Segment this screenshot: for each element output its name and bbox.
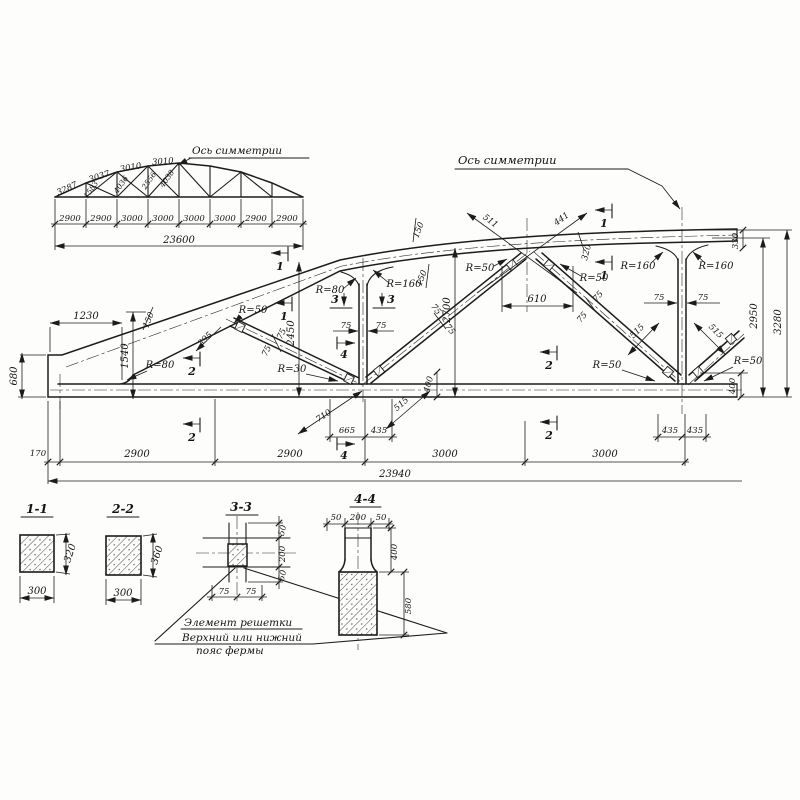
dim-515-d2: 515 <box>392 395 411 413</box>
label-r80-left: R=80 <box>127 360 175 380</box>
section-mark-4-bottom: 4 <box>337 438 355 462</box>
section-1-1-height: 320 <box>62 542 79 564</box>
section-mark-1-lowleft-num: 1 <box>280 310 288 323</box>
dim-3000-a: 3000 <box>432 449 458 460</box>
main-symmetry-axis-label: Ось симметрии <box>458 153 557 167</box>
overview-dim-panel2: 2900 <box>89 214 112 224</box>
dim-150-chord-a: 150 <box>411 220 427 239</box>
dim-3000-b: 3000 <box>592 449 618 460</box>
overview-dim-panel3: 3000 <box>121 214 143 224</box>
dim-r80-post1: R=80 <box>315 285 345 296</box>
section-mark-2-upright: 2 <box>540 346 557 372</box>
section-4-4-title: 4-4 <box>354 492 376 506</box>
section-mark-4-top-num: 4 <box>340 348 348 361</box>
dim-75-post2a: 75 <box>654 293 665 303</box>
dim-400-right: 400 <box>728 377 738 395</box>
dim-435-r2: 435 <box>686 426 703 436</box>
dim-2900-b: 2900 <box>276 449 303 460</box>
dim-395: 395 <box>196 330 215 348</box>
section-2-2: 2-2 300 360 <box>106 502 166 605</box>
dim-710: 710 <box>314 407 334 425</box>
section-mark-3-left-num: 3 <box>331 293 339 306</box>
dim-170: 170 <box>30 449 47 459</box>
overview-symmetry-axis-label: Ось симметрии <box>192 145 282 157</box>
dim-680: 680 <box>9 366 20 386</box>
dim-665: 665 <box>339 426 355 436</box>
overview-dim-panel6: 3000 <box>214 214 236 224</box>
section-3-3-d75a: 75 <box>219 587 230 597</box>
section-mark-3-right: 3 <box>373 293 395 308</box>
dim-1230-group: 1230 <box>50 311 122 380</box>
dim-r160-post2-left: R=160 <box>620 261 657 272</box>
section-3-3-vdims: 50 200 50 <box>248 516 290 589</box>
dim-435-435-group: 435 435 <box>653 414 711 442</box>
drawing-sheet: 2900 2900 3000 3000 3000 3000 2900 2900 … <box>0 0 800 800</box>
overview-dim-panel1: 2900 <box>58 214 81 224</box>
dim-r50-b2left: R=50 <box>592 360 622 371</box>
section-mark-2-upright-num: 2 <box>544 359 553 372</box>
section-4-4-d400: 400 <box>390 543 400 561</box>
dim-395-group: 395 <box>196 327 221 351</box>
dim-75-d3a: 75 <box>591 289 606 304</box>
section-mark-2-lowleft-num: 2 <box>187 431 196 444</box>
section-mark-4-bottom-num: 4 <box>340 449 348 462</box>
dim-75-post2b: 75 <box>698 293 709 303</box>
dim-511: 511 <box>481 213 500 231</box>
section-mark-2-upleft-num: 2 <box>187 365 196 378</box>
section-3-3-d50a: 50 <box>277 523 290 537</box>
section-4-4-d50a: 50 <box>331 513 342 523</box>
section-2-2-title: 2-2 <box>111 502 134 516</box>
section-2-2-width: 300 <box>113 588 133 599</box>
dim-2900-a: 2900 <box>123 449 150 460</box>
dim-r30-d1: R=30 <box>277 364 307 375</box>
section-1-1-title: 1-1 <box>26 502 48 516</box>
truss-drawing-canvas: 2900 2900 3000 3000 3000 3000 2900 2900 … <box>0 0 800 800</box>
dim-1230: 1230 <box>73 311 99 322</box>
section-mark-2-lowright-num: 2 <box>544 429 553 442</box>
section-4-4: 4-4 50 200 50 400 5 <box>323 492 414 650</box>
dim-2700: 2700 <box>442 297 453 324</box>
overview-diagdim-2: 4036 <box>111 174 130 196</box>
overview-dim-panel8: 2900 <box>275 214 298 224</box>
dim-330: 330 <box>731 232 741 249</box>
section-4-4-d50b: 50 <box>376 513 387 523</box>
section-mark-1-upright: 1 <box>595 204 612 230</box>
overview-topdim-1: 3287 <box>55 180 79 198</box>
section-4-4-d200: 200 <box>349 513 367 523</box>
dim-435-r1: 435 <box>661 426 678 436</box>
dim-150-left: 150 <box>141 310 157 329</box>
dim-23940-total: 23940 <box>378 469 411 480</box>
overview-truss: 2900 2900 3000 3000 3000 3000 2900 2900 … <box>51 145 309 250</box>
overview-dim-panel5: 3000 <box>183 214 205 224</box>
section-mark-2-upleft: 2 <box>183 352 200 378</box>
section-3-3-title: 3-3 <box>230 500 252 514</box>
dim-r160-post2-right: R=160 <box>698 261 735 272</box>
main-centerlines <box>50 207 744 414</box>
section-mark-2-lowleft: 2 <box>183 418 200 444</box>
overview-dim-panel7: 2900 <box>244 214 267 224</box>
section-mark-4-top: 4 <box>337 337 355 361</box>
main-elevation: Ось симметрии 680 1230 1540 150 R=80 R=5… <box>9 153 792 484</box>
section-mark-1-upright-num: 1 <box>600 217 608 230</box>
dim-r50-b2right: R=50 <box>733 356 763 367</box>
section-mark-1-upleft: 1 <box>271 247 288 273</box>
dim-1540: 1540 <box>120 343 131 369</box>
section-mark-1-lowleft: 1 <box>275 297 292 323</box>
dim-441: 441 <box>552 211 572 229</box>
label-chord-line2: пояс фермы <box>196 645 264 657</box>
section-2-2-height: 360 <box>149 544 166 566</box>
overview-topdim-3: 3010 <box>119 161 143 175</box>
section-mark-3-right-num: 3 <box>387 293 395 306</box>
dim-75-d3b: 75 <box>575 310 590 325</box>
section-1-1-width: 300 <box>27 586 47 597</box>
dim-r80-left-text: R=80 <box>145 360 175 371</box>
label-lattice-element: Элемент решетки <box>184 617 292 629</box>
label-chord-line1: Верхний или нижний <box>181 632 302 644</box>
section-3-3-d75b: 75 <box>246 587 257 597</box>
dim-665-435-group: 665 435 <box>325 399 397 442</box>
dim-680-group: 680 <box>9 353 46 399</box>
right-height-dims: 2950 3280 330 400 <box>700 227 792 400</box>
overview-topdim-4: 3010 <box>152 156 175 168</box>
dim-610: 610 <box>527 294 547 305</box>
overview-dim-total: 23600 <box>162 235 195 246</box>
dim-r50-mid-left: R=50 <box>465 263 495 274</box>
section-1-1: 1-1 300 320 <box>20 502 79 603</box>
section-3-3-d200: 200 <box>278 545 288 563</box>
section-mark-1-upleft-num: 1 <box>276 260 284 273</box>
dim-r50-d1: R=50 <box>238 305 268 316</box>
dim-435-mid: 435 <box>370 426 387 436</box>
section-mark-2-lowright: 2 <box>540 416 557 442</box>
section-3-3: 3-3 50 200 50 75 75 <box>155 500 447 657</box>
bottom-dim-chain: 170 2900 2900 3000 3000 23940 <box>30 399 742 484</box>
dim-2950: 2950 <box>749 303 760 330</box>
dim-400-mid: 400 <box>422 375 436 395</box>
section-4-4-rightdims: 400 580 <box>373 525 414 638</box>
dim-3280: 3280 <box>773 309 784 335</box>
dim-75-post1b: 75 <box>376 321 387 331</box>
dim-75-post1-group: 75 75 <box>333 321 394 331</box>
dim-75-post1a: 75 <box>341 321 352 331</box>
dim-r50-mid-right: R=50 <box>579 273 609 284</box>
dim-2450: 2450 <box>286 320 297 347</box>
dim-75-d2a: 75 <box>428 302 443 317</box>
overview-diagdim-4: 4038 <box>157 168 176 190</box>
section-4-4-d580: 580 <box>404 597 414 614</box>
overview-dim-panel4: 3000 <box>152 214 174 224</box>
